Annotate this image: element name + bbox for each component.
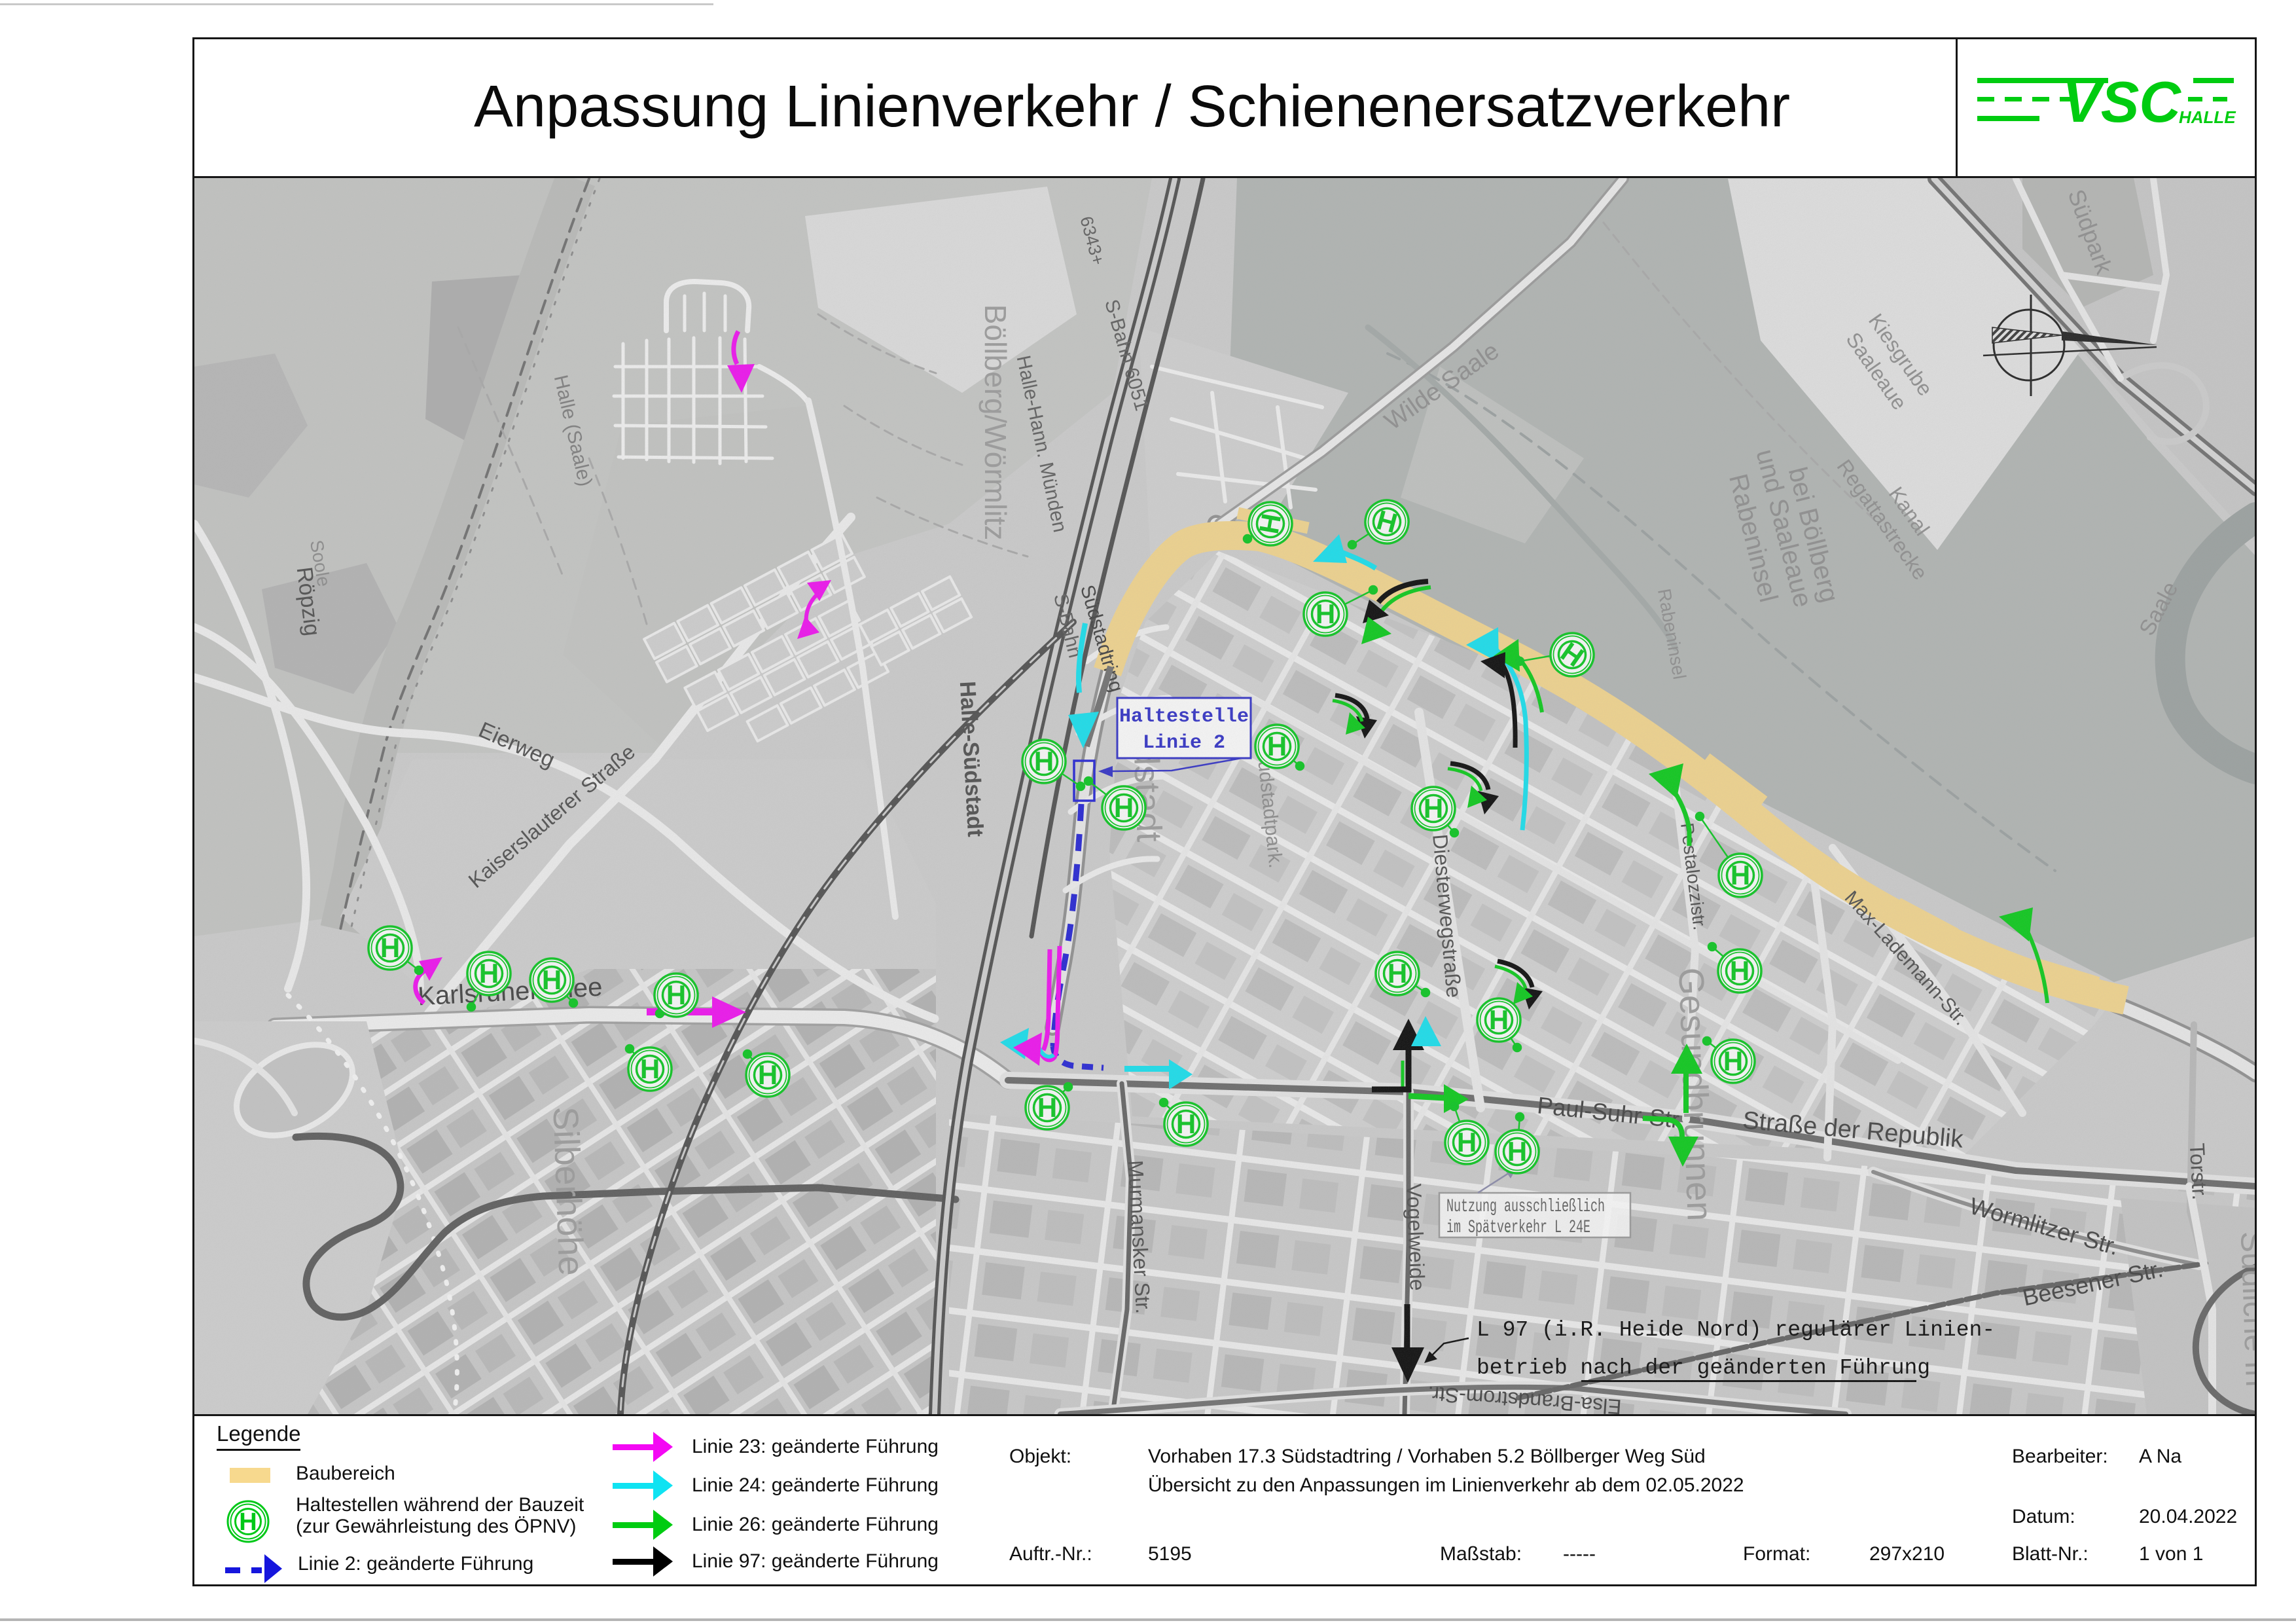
svg-text:H: H xyxy=(239,1508,257,1536)
svg-text:VSC: VSC xyxy=(2062,75,2181,131)
svg-text:HALLE: HALLE xyxy=(2179,107,2236,127)
